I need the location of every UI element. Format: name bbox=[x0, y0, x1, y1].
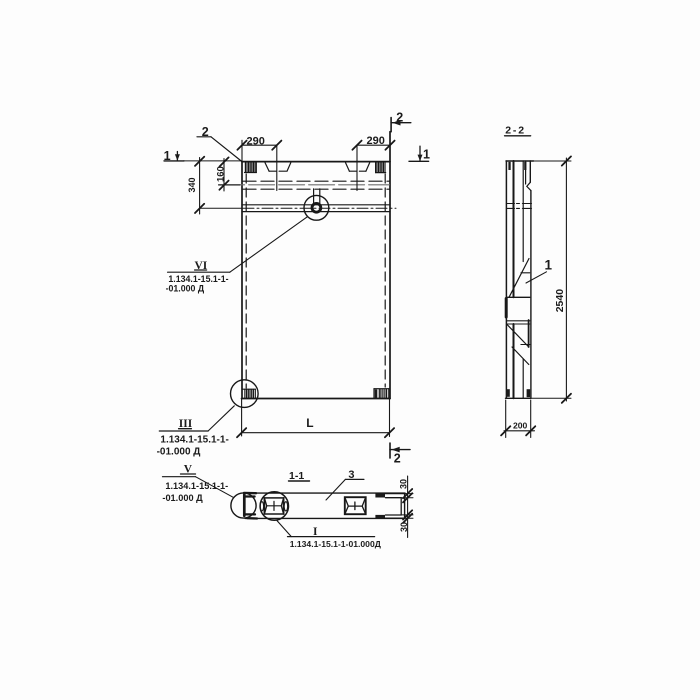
svg-text:160: 160 bbox=[215, 166, 226, 182]
svg-text:2-2: 2-2 bbox=[505, 124, 526, 136]
svg-text:VI: VI bbox=[195, 260, 208, 272]
svg-text:290: 290 bbox=[367, 135, 385, 147]
svg-text:3: 3 bbox=[348, 469, 354, 481]
svg-text:1: 1 bbox=[423, 148, 430, 162]
svg-text:30: 30 bbox=[398, 479, 408, 489]
svg-text:30: 30 bbox=[399, 522, 409, 532]
svg-text:1: 1 bbox=[545, 258, 553, 273]
svg-text:1.134.1-15.1-1-: 1.134.1-15.1-1- bbox=[160, 435, 228, 446]
svg-text:2: 2 bbox=[396, 110, 403, 124]
svg-text:III: III bbox=[179, 418, 193, 430]
svg-text:200: 200 bbox=[513, 420, 528, 430]
svg-text:2: 2 bbox=[394, 452, 401, 466]
svg-text:2540: 2540 bbox=[554, 289, 566, 313]
svg-text:1.134.1-15.1-1-01.000Д: 1.134.1-15.1-1-01.000Д bbox=[290, 539, 381, 549]
svg-text:340: 340 bbox=[187, 177, 197, 192]
svg-text:-01.000 Д: -01.000 Д bbox=[166, 283, 205, 293]
svg-text:V: V bbox=[184, 463, 193, 475]
svg-text:1.134.1-15.1-1-: 1.134.1-15.1-1- bbox=[165, 481, 228, 491]
svg-text:1-1: 1-1 bbox=[289, 470, 304, 482]
svg-text:-01.000 Д: -01.000 Д bbox=[157, 446, 201, 457]
svg-text:I: I bbox=[313, 526, 318, 538]
svg-text:L: L bbox=[306, 416, 313, 430]
svg-text:-01.000 Д: -01.000 Д bbox=[162, 493, 203, 503]
svg-text:290: 290 bbox=[247, 136, 265, 148]
svg-text:1: 1 bbox=[164, 149, 171, 163]
svg-text:2: 2 bbox=[202, 125, 209, 139]
